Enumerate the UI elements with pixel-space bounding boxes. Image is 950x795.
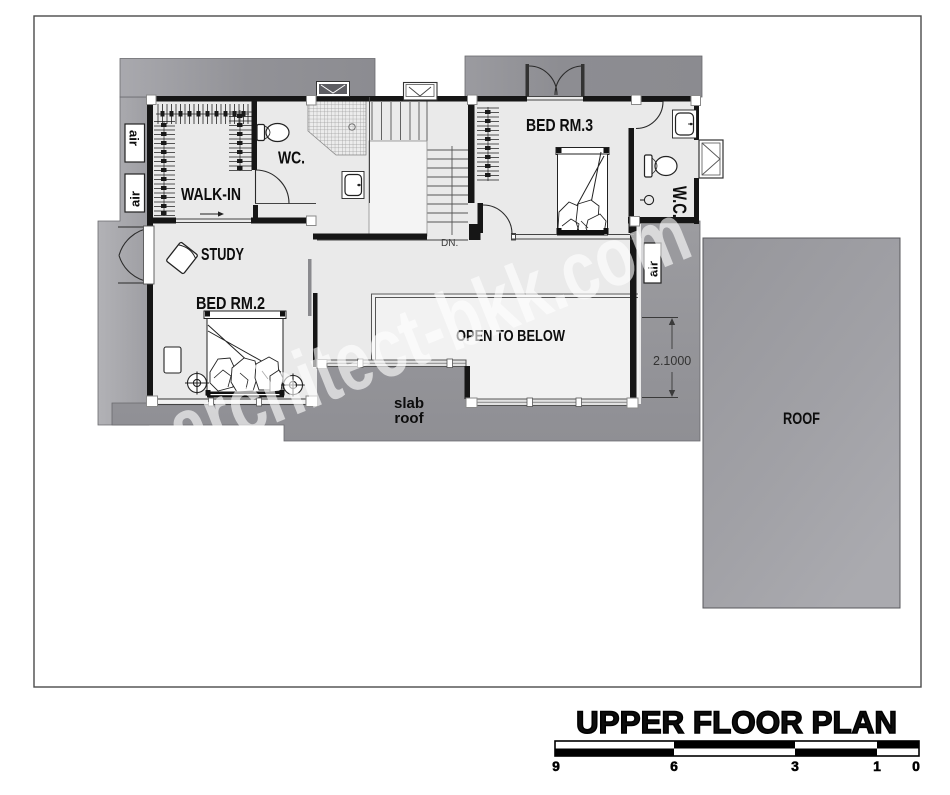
svg-text:BED RM.2: BED RM.2 <box>196 293 265 313</box>
svg-text:air: air <box>127 130 142 146</box>
svg-text:roof: roof <box>394 410 424 427</box>
svg-text:9: 9 <box>552 758 560 774</box>
svg-text:1: 1 <box>873 758 881 774</box>
svg-text:STUDY: STUDY <box>201 244 244 264</box>
svg-text:0: 0 <box>912 758 920 774</box>
svg-text:air: air <box>128 191 143 207</box>
svg-text:2.1000: 2.1000 <box>653 354 691 368</box>
svg-text:UPPER FLOOR PLAN: UPPER FLOOR PLAN <box>576 704 897 740</box>
svg-text:WALK-IN: WALK-IN <box>181 184 241 204</box>
svg-text:BED RM.3: BED RM.3 <box>526 115 593 135</box>
svg-text:6: 6 <box>670 758 678 774</box>
svg-text:ROOF: ROOF <box>783 410 820 428</box>
svg-text:WC.: WC. <box>278 148 305 168</box>
svg-text:3: 3 <box>791 758 799 774</box>
